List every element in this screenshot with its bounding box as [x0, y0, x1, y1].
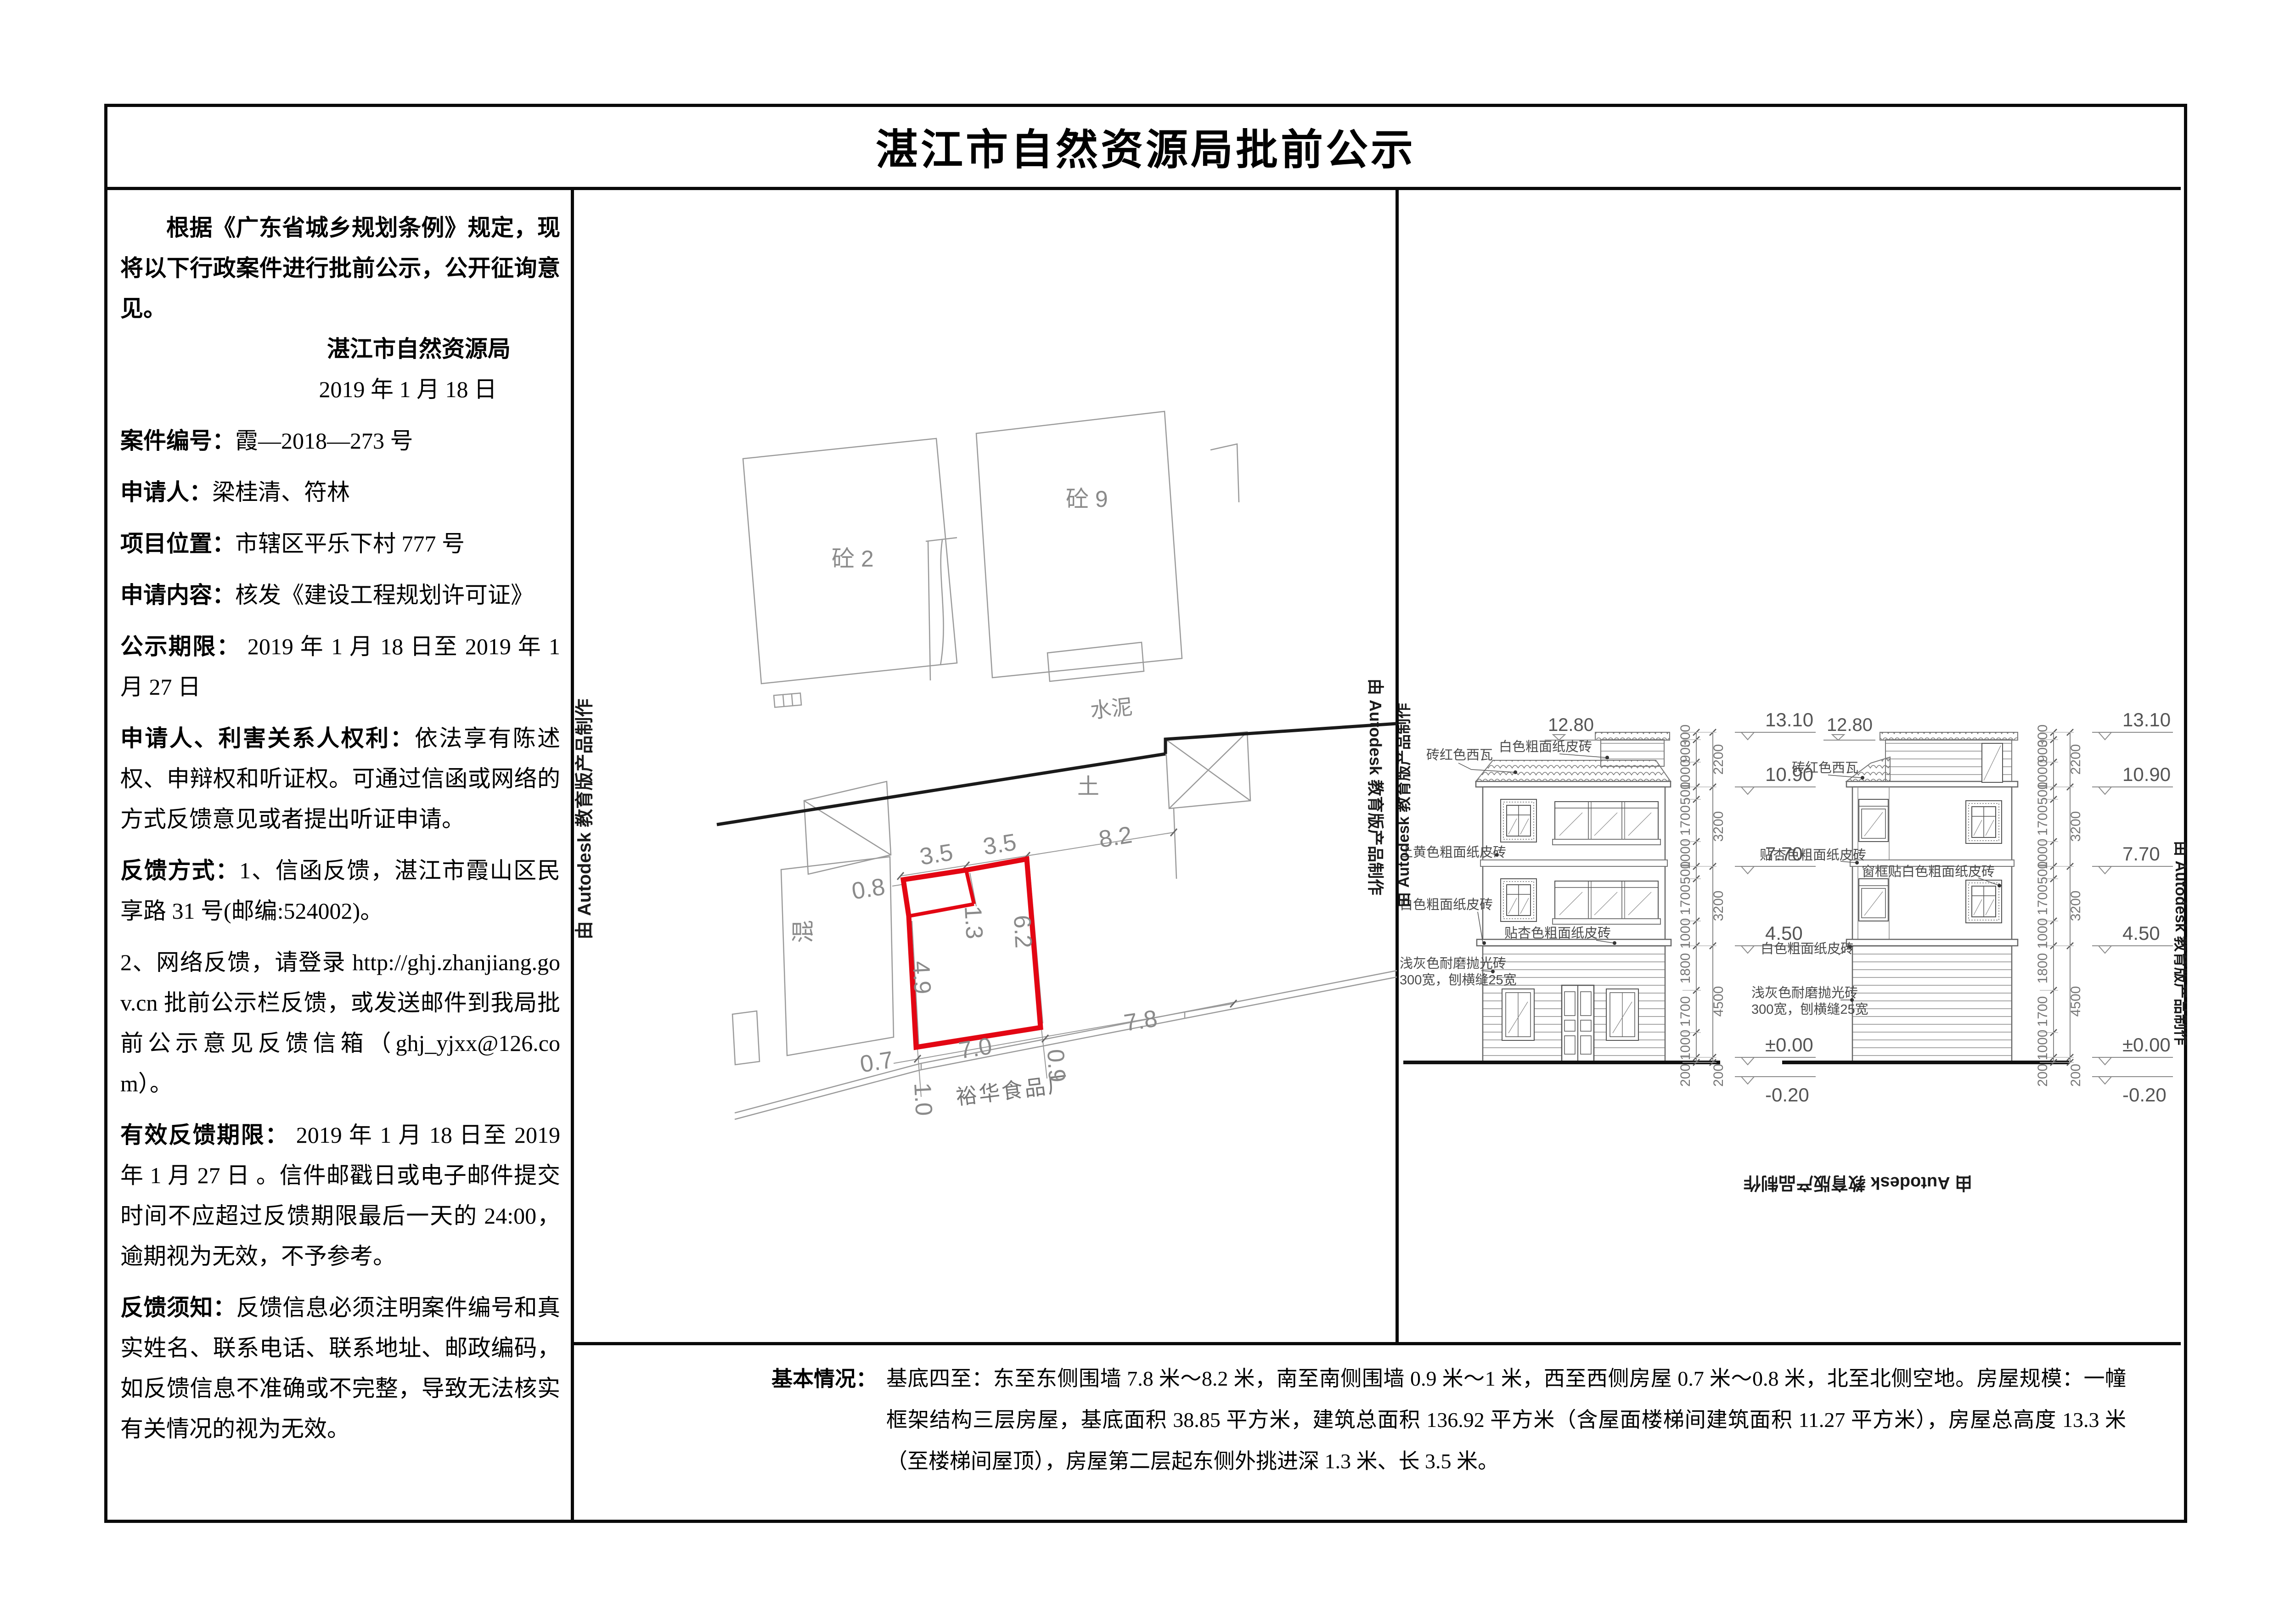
window-band [1555, 881, 1658, 919]
floor-band-7-70 [1480, 860, 1667, 866]
notice-date: 2019 年 1 月 18 日 [120, 369, 560, 410]
basic-info-text: 基底四至：东至东侧围墙 7.8 米～8.2 米，南至南侧围墙 0.9 米～1 米… [886, 1358, 2126, 1482]
road-edge [717, 724, 1397, 825]
field-content: 申请内容：核发《建设工程规划许可证》 [120, 575, 560, 615]
field-location: 项目位置：市辖区平乐下村 777 号 [120, 523, 560, 564]
side-elevation-chain [2035, 709, 2173, 1106]
dim-top1: 3.5 [918, 839, 955, 870]
window [1502, 989, 1534, 1040]
notice-text-panel: 根据《广东省城乡规划条例》规定，现将以下行政案件进行批前公示，公开征询意见。 湛… [120, 208, 560, 1449]
autodesk-watermark: 由 Autodesk 教育版产品制作 [2172, 841, 2187, 1045]
notice-page: 湛江市自然资源局批前公示 根据《广东省城乡规划条例》规定，现将以下行政案件进行批… [0, 0, 2296, 1623]
basic-info-label: 基本情况： [771, 1358, 886, 1482]
dim-left: 4.9 [907, 960, 936, 995]
south-fence [735, 971, 1397, 1119]
entry-door [1562, 985, 1594, 1062]
ground-floor-siding [1852, 946, 2012, 1062]
window [1859, 799, 1888, 842]
dim-bottom: 7.0 [957, 1033, 994, 1064]
material-label: 300宽，刨横缝25宽 [1400, 972, 1517, 988]
road-label: 水泥 [1089, 695, 1134, 723]
mid-level-12-80: 12.80 [1545, 715, 1597, 740]
autodesk-watermark: 由 Autodesk 教育版产品制作 [1744, 1173, 1972, 1192]
building-concrete-9-outline [976, 411, 1182, 681]
field-valid-period: 有效反馈期限： 2019 年 1 月 18 日至 2019 年 1 月 27 日… [120, 1115, 560, 1276]
window [1501, 799, 1536, 842]
stair-window [1982, 743, 2003, 782]
field-rights: 申请人、利害关系人权利：依法享有陈述权、申辩权和听证权。可通过信函或网络的方式反… [120, 718, 560, 839]
crossed-structure-east [1165, 732, 1250, 879]
material-label: 土黄色粗面纸皮砖 [1400, 845, 1506, 860]
material-label: 300宽，刨横缝25宽 [1751, 1002, 1868, 1017]
autodesk-watermark: 由 Autodesk 教育版产品制作 [1399, 703, 1412, 908]
field-feedback-method: 反馈方式：1、信函反馈，湛江市霞山区民享路 31 号(邮编:524002)。 [120, 850, 560, 931]
dim-top2: 3.5 [981, 829, 1018, 860]
basic-info-section: 基本情况： 基底四至：东至东侧围墙 7.8 米～8.2 米，南至南侧围墙 0.9… [771, 1358, 2149, 1482]
window [1859, 879, 1888, 921]
plot-dimensions: 3.5 3.5 8.2 0.8 1.3 6.2 4.9 7.0 0.7 7.8 … [850, 821, 1159, 1117]
canopy-band-4-50 [1846, 939, 2018, 946]
svg-text:12.80: 12.80 [1548, 715, 1594, 735]
window [1966, 801, 2002, 843]
page-title: 湛江市自然资源局批前公示 [111, 116, 2181, 185]
crossed-structure-west [804, 781, 891, 874]
window [1501, 879, 1536, 921]
small-shed [774, 693, 801, 708]
building-mixed-label: 混 [790, 920, 816, 943]
material-label: 白色粗面纸皮砖 [1499, 739, 1592, 754]
field-feedback-web: 2、网络反馈，请登录 http://ghj.zhanjiang.gov.cn 批… [120, 942, 560, 1104]
red-plot-outline [903, 859, 1041, 1047]
main-roof [1476, 760, 1671, 787]
soil-label: 土 [1077, 775, 1099, 799]
svg-text:12.80: 12.80 [1827, 715, 1873, 735]
autodesk-watermark: 由 Autodesk 教育版产品制作 [1366, 679, 1385, 895]
dim-south2: 0.9 [1042, 1049, 1070, 1083]
autodesk-watermark: 由 Autodesk 教育版产品制作 [574, 699, 595, 939]
dim-right: 6.2 [1008, 915, 1037, 949]
material-label: 浅灰色耐磨抛光砖 [1400, 956, 1506, 971]
window-band [1555, 802, 1658, 839]
material-label: 砖红色西瓦 [1792, 760, 1858, 775]
material-label: 浅灰色耐磨抛光砖 [1751, 985, 1858, 1000]
field-applicant: 申请人：梁桂清、符林 [120, 472, 560, 512]
window [1606, 989, 1638, 1040]
material-label: 贴杏色粗面纸皮砖 [1760, 848, 1866, 863]
window [1966, 880, 2002, 923]
stair-roof [1880, 732, 2018, 740]
dim-se: 7.8 [1122, 1005, 1159, 1037]
notice-intro: 根据《广东省城乡规划条例》规定，现将以下行政案件进行批前公示，公开征询意见。 [120, 208, 560, 329]
building-concrete-2-label: 砼 2 [832, 546, 874, 572]
field-feedback-notes: 反馈须知：反馈信息必须注明案件编号和真实姓名、联系电话、联系地址、邮政编码，如反… [120, 1287, 560, 1449]
material-label: 白色粗面纸皮砖 [1400, 897, 1493, 912]
notice-agency: 湛江市自然资源局 [120, 329, 560, 369]
building-concrete-9-label: 砼 9 [1066, 486, 1108, 512]
side-elevation: 12.80 砖红色西瓦 贴杏色粗面纸皮砖 窗框贴白色粗面纸皮砖 白色粗面纸皮砖 … [1751, 709, 2173, 1106]
mid-level-12-80: 12.80 [1823, 715, 1875, 740]
material-label: 窗框贴白色粗面纸皮砖 [1862, 864, 1995, 879]
dim-east: 8.2 [1097, 821, 1134, 853]
stair-roof [1595, 732, 1670, 740]
dim-sw: 0.7 [858, 1046, 895, 1078]
material-label: 砖红色西瓦 [1426, 747, 1493, 763]
material-label: 贴杏色粗面纸皮砖 [1504, 926, 1611, 941]
title-divider [107, 187, 2181, 190]
east-structure [1210, 444, 1239, 502]
dim-notch: 1.3 [959, 905, 988, 940]
front-elevation: 12.80 砖红色西瓦 白色粗面纸皮砖 土黄色粗面纸皮砖 白色粗面纸皮砖 贴杏色… [1400, 709, 1816, 1106]
elevation-drawings: 300 900 1000 500 1700 1000 500 1700 1000… [1399, 190, 2187, 1345]
dim-south1: 1.0 [909, 1082, 937, 1117]
dim-west: 0.8 [850, 873, 887, 905]
site-plan-drawing: 砼 2 砼 9 混 水泥 土 裕华食品厂 3.5 3.5 8.2 0.8 1.3… [572, 190, 1397, 1345]
field-publicity-period: 公示期限： 2019 年 1 月 18 日至 2019 年 1 月 27 日 [120, 626, 560, 707]
field-case-number: 案件编号：霞—2018—273 号 [120, 421, 560, 461]
